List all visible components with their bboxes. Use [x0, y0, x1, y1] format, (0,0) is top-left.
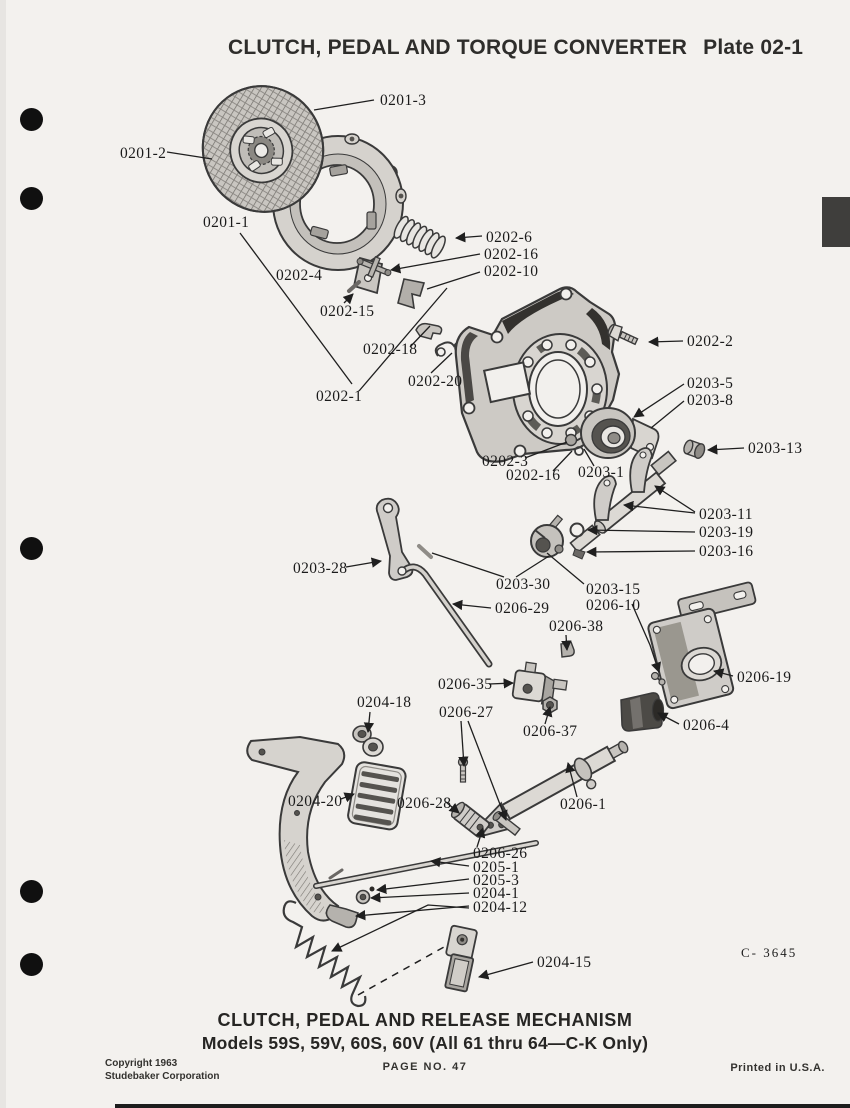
woodruff-key: [573, 549, 585, 559]
equalizer-rod: [398, 567, 489, 664]
figure-caption: CLUTCH, PEDAL AND RELEASE MECHANISM Mode…: [0, 1010, 850, 1054]
pedal-mount-bracket: [643, 582, 776, 710]
leader-line-0202-15: [344, 294, 353, 303]
exploded-parts-diagram: 0201-30201-20201-10202-40202-60202-16020…: [0, 0, 850, 1108]
part-label-0206-29: 0206-29: [495, 600, 549, 617]
spring-anchor-bracket: [439, 925, 479, 991]
part-label-0203-13: 0203-13: [748, 440, 802, 457]
part-label-0203-19: 0203-19: [699, 524, 753, 541]
part-label-0204-15: 0204-15: [537, 954, 591, 971]
leader-line-0205-3: [377, 879, 469, 890]
part-label-0203-5: 0203-5: [687, 375, 733, 392]
part-label-0203-15: 0203-15: [586, 581, 640, 598]
part-label-0202-20: 0202-20: [408, 373, 462, 390]
leader-line-0206-35: [489, 683, 513, 684]
figure-caption-models: Models 59S, 59V, 60S, 60V (All 61 thru 6…: [0, 1033, 850, 1054]
part-label-0202-2: 0202-2: [687, 333, 733, 350]
leader-line-0204-12: [356, 906, 469, 916]
leader-line-0202-2: [649, 341, 683, 342]
pedal-arm: [247, 737, 358, 927]
rod-washer: [357, 891, 370, 904]
part-label-0203-28: 0203-28: [293, 560, 347, 577]
clutch-spring: [392, 215, 448, 260]
o-ring: [571, 524, 584, 537]
leader-line-0204-1: [371, 893, 469, 898]
figure-caption-title: CLUTCH, PEDAL AND RELEASE MECHANISM: [0, 1010, 850, 1031]
part-label-0202-15: 0202-15: [320, 303, 374, 320]
small-nut: [566, 435, 577, 446]
part-label-0202-16: 0202-16: [506, 467, 560, 484]
part-label-0206-1: 0206-1: [560, 796, 606, 813]
part-label-0203-8: 0203-8: [687, 392, 733, 409]
part-label-0202-1: 0202-1: [316, 388, 362, 405]
part-label-0206-35: 0206-35: [438, 676, 492, 693]
leader-line-0206-27: [468, 721, 506, 820]
part-label-0206-37: 0206-37: [523, 723, 577, 740]
leader-line-0203-8: [651, 401, 684, 428]
part-label-0201-1: 0201-1: [203, 214, 249, 231]
shaft-cap: [682, 439, 706, 460]
scanned-manual-page: CLUTCH, PEDAL AND TORQUE CONVERTER Plate…: [0, 0, 850, 1108]
leader-line-0202-6: [456, 236, 482, 238]
part-label-0203-30: 0203-30: [496, 576, 550, 593]
part-label-0206-19: 0206-19: [737, 669, 791, 686]
printed-in-usa: Printed in U.S.A.: [730, 1062, 825, 1074]
part-label-0204-12: 0204-12: [473, 899, 527, 916]
spring-alignment-dashed-line: [358, 947, 444, 995]
part-label-0204-20: 0204-20: [288, 793, 342, 810]
part-label-0206-10: 0206-10: [586, 597, 640, 614]
part-label-0206-4: 0206-4: [683, 717, 729, 734]
leader-line-0201-3: [314, 100, 374, 110]
part-label-C- 3645: C- 3645: [741, 945, 797, 960]
trunnion-block: [512, 661, 569, 707]
part-label-0203-16: 0203-16: [699, 543, 753, 560]
part-label-0202-4: 0202-4: [276, 267, 322, 284]
part-label-0201-2: 0201-2: [120, 145, 166, 162]
leader-line-0203-30: [432, 553, 504, 577]
clamp-pin: [419, 546, 431, 557]
part-label-0202-18: 0202-18: [363, 341, 417, 358]
part-label-0204-18: 0204-18: [357, 694, 411, 711]
cone-bushing: [621, 693, 664, 731]
leader-line-0203-30: [516, 556, 549, 577]
leader-line-0203-28: [346, 561, 381, 567]
leader-line-0203-11: [655, 486, 695, 512]
page-number: PAGE NO. 47: [0, 1061, 850, 1073]
leader-line-0206-29: [453, 604, 491, 608]
lever-hub-clamp: [531, 515, 563, 557]
part-label-0202-10: 0202-10: [484, 263, 538, 280]
leader-line-0204-15: [479, 962, 533, 977]
clevis-bolt: [459, 758, 468, 783]
part-label-0206-38: 0206-38: [549, 618, 603, 635]
leader-line-0203-5: [634, 384, 684, 417]
leader-line-0203-13: [708, 448, 744, 450]
part-label-0201-3: 0201-3: [380, 92, 426, 109]
part-label-0202-16: 0202-16: [484, 246, 538, 263]
hex-nut: [543, 697, 557, 713]
page-bottom-edge: [115, 1104, 850, 1108]
part-label-0203-1: 0203-1: [578, 464, 624, 481]
leader-line-0202-10: [427, 272, 480, 289]
release-pawl: [398, 279, 424, 308]
part-label-0202-6: 0202-6: [486, 229, 532, 246]
part-label-0203-11: 0203-11: [699, 506, 753, 523]
part-label-0206-28: 0206-28: [397, 795, 451, 812]
part-label-0206-27: 0206-27: [439, 704, 493, 721]
leader-line-0203-16: [587, 551, 695, 552]
rod-coupling: [449, 800, 490, 838]
pedal-shaft: [473, 735, 637, 846]
